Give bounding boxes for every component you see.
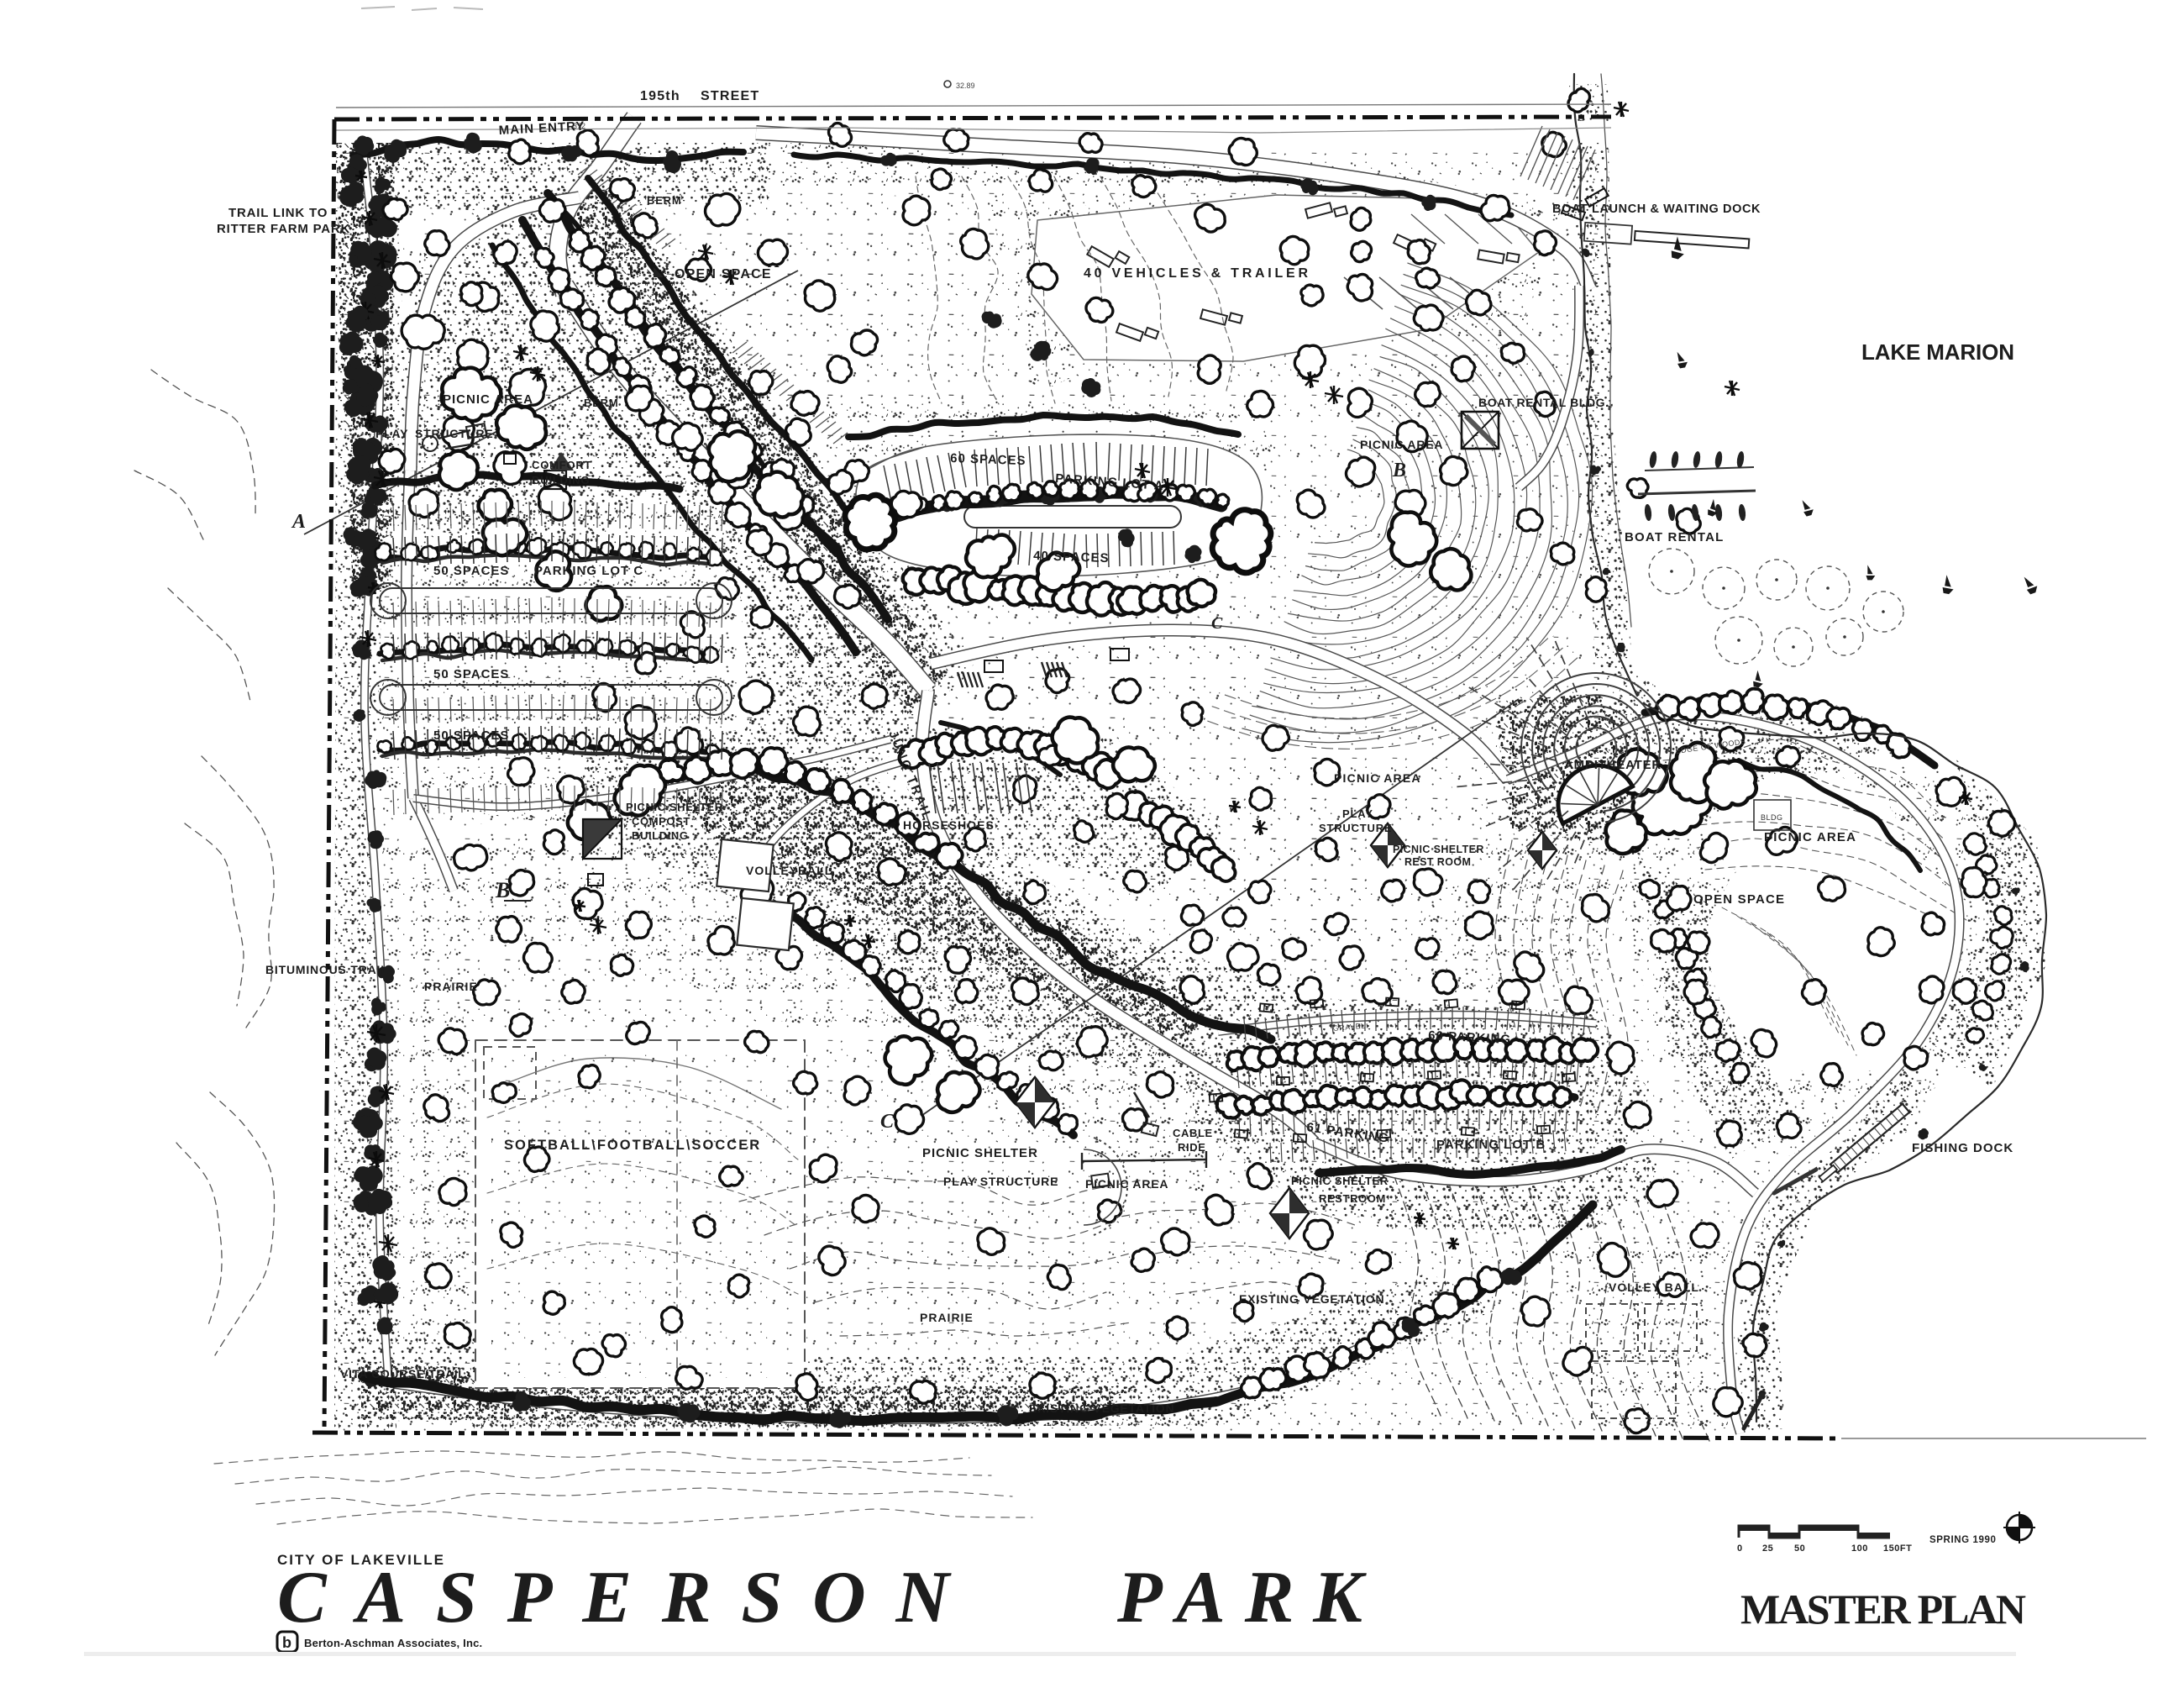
svg-text:RITTER FARM PARK: RITTER FARM PARK — [217, 222, 350, 236]
svg-text:60 SPACES: 60 SPACES — [950, 451, 1026, 468]
svg-text:50: 50 — [1794, 1543, 1805, 1554]
svg-text:HORSESHOES: HORSESHOES — [903, 818, 995, 832]
svg-text:PRAIRIE: PRAIRIE — [920, 1311, 974, 1324]
svg-text:CASPERSON: CASPERSON — [277, 1557, 952, 1638]
svg-text:100: 100 — [1851, 1543, 1868, 1554]
svg-text:B: B — [495, 878, 510, 902]
svg-text:BITUMINOUS TRAIL: BITUMINOUS TRAIL — [265, 963, 389, 976]
svg-text:Berton-Aschman Associates, Inc: Berton-Aschman Associates, Inc. — [304, 1637, 482, 1649]
svg-text:0: 0 — [1737, 1543, 1743, 1554]
svg-text:BUILDING: BUILDING — [532, 474, 590, 486]
svg-text:LAKE MARION: LAKE MARION — [1861, 339, 2014, 365]
svg-text:CABLE: CABLE — [1173, 1127, 1213, 1139]
svg-text:EXISTING VEGETATION: EXISTING VEGETATION — [1239, 1292, 1384, 1306]
svg-text:PICNIC AREA: PICNIC AREA — [1764, 830, 1856, 844]
svg-text:40 VEHICLES & TRAILER: 40 VEHICLES & TRAILER — [1084, 266, 1309, 281]
svg-text:TRAIL LINK TO: TRAIL LINK TO — [228, 206, 328, 220]
svg-text:STREET: STREET — [701, 89, 759, 103]
svg-text:195th: 195th — [640, 89, 680, 103]
svg-text:PARKING LOT B: PARKING LOT B — [1436, 1138, 1546, 1152]
svg-text:PICNIC SHELTER: PICNIC SHELTER — [1291, 1175, 1389, 1187]
svg-text:PLAY: PLAY — [1342, 807, 1373, 820]
svg-text:BOAT RENTAL BLDG.: BOAT RENTAL BLDG. — [1478, 396, 1609, 409]
svg-text:VOLLEYBALL: VOLLEYBALL — [746, 864, 832, 877]
svg-text:32.89: 32.89 — [956, 82, 975, 90]
svg-text:STRUCTURE: STRUCTURE — [415, 427, 494, 440]
svg-text:PICNIC AREA: PICNIC AREA — [1360, 438, 1443, 451]
svg-text:PLAY: PLAY — [375, 427, 408, 440]
svg-text:372: 372 — [573, 122, 585, 130]
svg-text:PICNIC AREA: PICNIC AREA — [1334, 771, 1421, 785]
svg-text:PRAIRIE: PRAIRIE — [424, 980, 478, 993]
svg-text:SOFTBALL\FOOTBALL\SOCCER: SOFTBALL\FOOTBALL\SOCCER — [504, 1138, 760, 1153]
svg-text:COMFORT: COMFORT — [532, 459, 591, 471]
svg-text:C: C — [1211, 614, 1223, 633]
svg-text:RIDE: RIDE — [1178, 1141, 1205, 1154]
svg-text:BLDG: BLDG — [1761, 813, 1783, 822]
svg-text:PARK: PARK — [1116, 1557, 1367, 1638]
svg-text:BERM: BERM — [647, 194, 681, 207]
svg-text:VOLLEY BALL: VOLLEY BALL — [1609, 1280, 1699, 1294]
svg-text:PLAY STRUCTURE: PLAY STRUCTURE — [943, 1175, 1058, 1188]
svg-text:PICNIC SHELTER: PICNIC SHELTER — [922, 1146, 1038, 1160]
svg-text:REST ROOM: REST ROOM — [1404, 856, 1471, 868]
svg-text:EXISTING VEGETATION: EXISTING VEGETATION — [1029, 1401, 1174, 1415]
svg-text:PICNIC SHELTER: PICNIC SHELTER — [1393, 844, 1484, 855]
svg-text:25: 25 — [1762, 1543, 1773, 1554]
svg-text:PICNIC SHELTER: PICNIC SHELTER — [626, 801, 723, 813]
svg-text:PARKING LOT C: PARKING LOT C — [534, 564, 643, 578]
svg-text:b: b — [282, 1634, 291, 1651]
svg-text:C: C — [880, 1111, 895, 1133]
svg-text:50 SPACES: 50 SPACES — [433, 564, 509, 578]
svg-text:FISHING DOCK: FISHING DOCK — [1912, 1141, 2013, 1155]
svg-text:STRUCTURE: STRUCTURE — [1319, 822, 1392, 834]
svg-text:RESTROOM: RESTROOM — [1319, 1192, 1386, 1205]
svg-text:PICNIC AREA: PICNIC AREA — [443, 392, 533, 407]
svg-text:40 SPACES: 40 SPACES — [1033, 549, 1110, 565]
svg-text:OPEN SPACE: OPEN SPACE — [675, 267, 772, 281]
svg-text:50 SPACES: 50 SPACES — [433, 728, 509, 743]
svg-text:OPEN SPACE: OPEN SPACE — [1693, 892, 1785, 907]
svg-text:MASTER PLAN: MASTER PLAN — [1740, 1585, 2026, 1633]
svg-text:BOAT LAUNCH & WAITING DOCK: BOAT LAUNCH & WAITING DOCK — [1552, 202, 1761, 216]
svg-text:50 SPACES: 50 SPACES — [433, 667, 509, 681]
svg-text:BERM: BERM — [584, 397, 618, 409]
svg-text:VITA COURSE/TRAIL: VITA COURSE/TRAIL — [340, 1367, 465, 1380]
svg-text:150FT: 150FT — [1883, 1543, 1912, 1554]
svg-text:SPRING 1990: SPRING 1990 — [1929, 1535, 1996, 1545]
svg-text:BOAT RENTAL: BOAT RENTAL — [1625, 530, 1724, 544]
svg-text:AMPITHEATER: AMPITHEATER — [1564, 758, 1662, 772]
svg-text:B: B — [1392, 460, 1406, 481]
svg-text:PICNIC AREA: PICNIC AREA — [1085, 1177, 1168, 1191]
svg-text:COMPOST: COMPOST — [632, 815, 690, 828]
svg-text:A: A — [291, 511, 306, 533]
svg-text:BUILDING: BUILDING — [632, 829, 689, 842]
